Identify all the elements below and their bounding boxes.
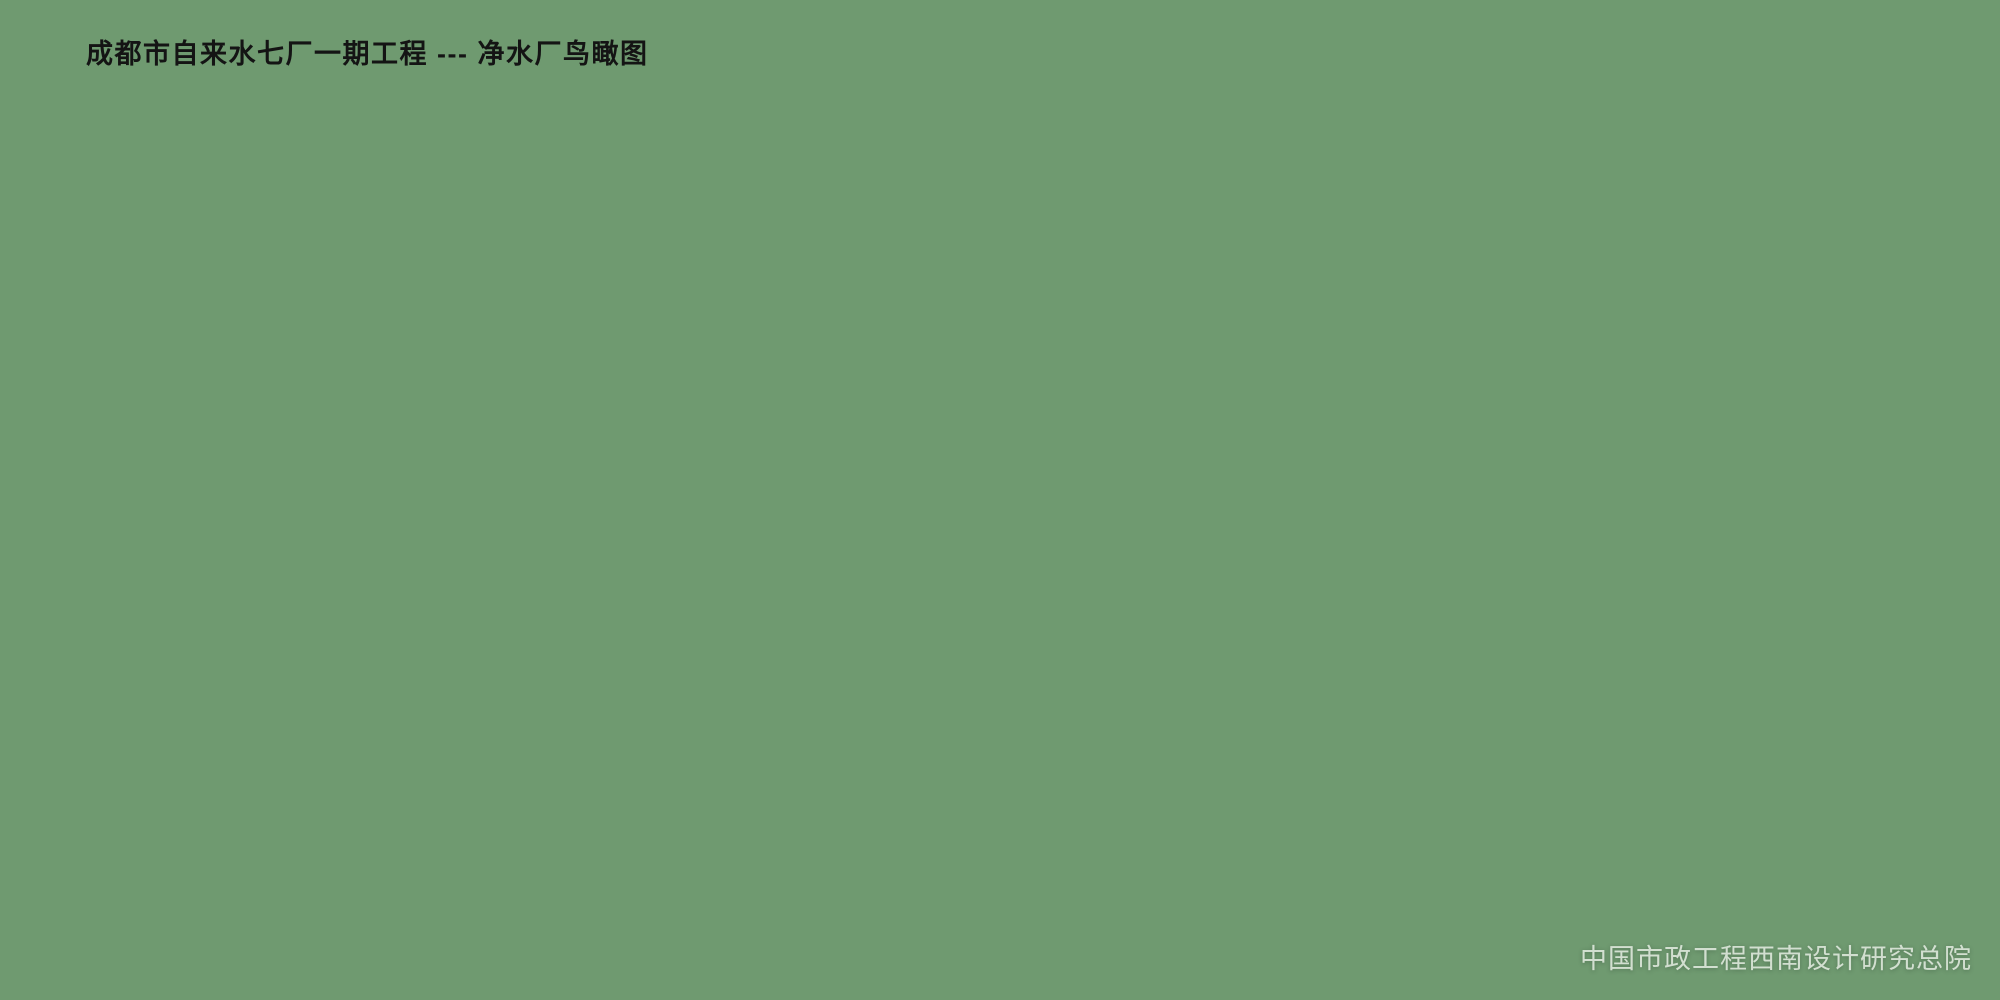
rendering-canvas: 成都市自来水七厂一期工程 --- 净水厂鸟瞰图 中国市政工程西南设计研究总院 bbox=[0, 0, 2000, 1000]
page-title: 成都市自来水七厂一期工程 --- 净水厂鸟瞰图 bbox=[86, 32, 648, 71]
designer-credit: 中国市政工程西南设计研究总院 bbox=[1580, 937, 1972, 976]
scene-svg bbox=[0, 0, 2000, 1000]
